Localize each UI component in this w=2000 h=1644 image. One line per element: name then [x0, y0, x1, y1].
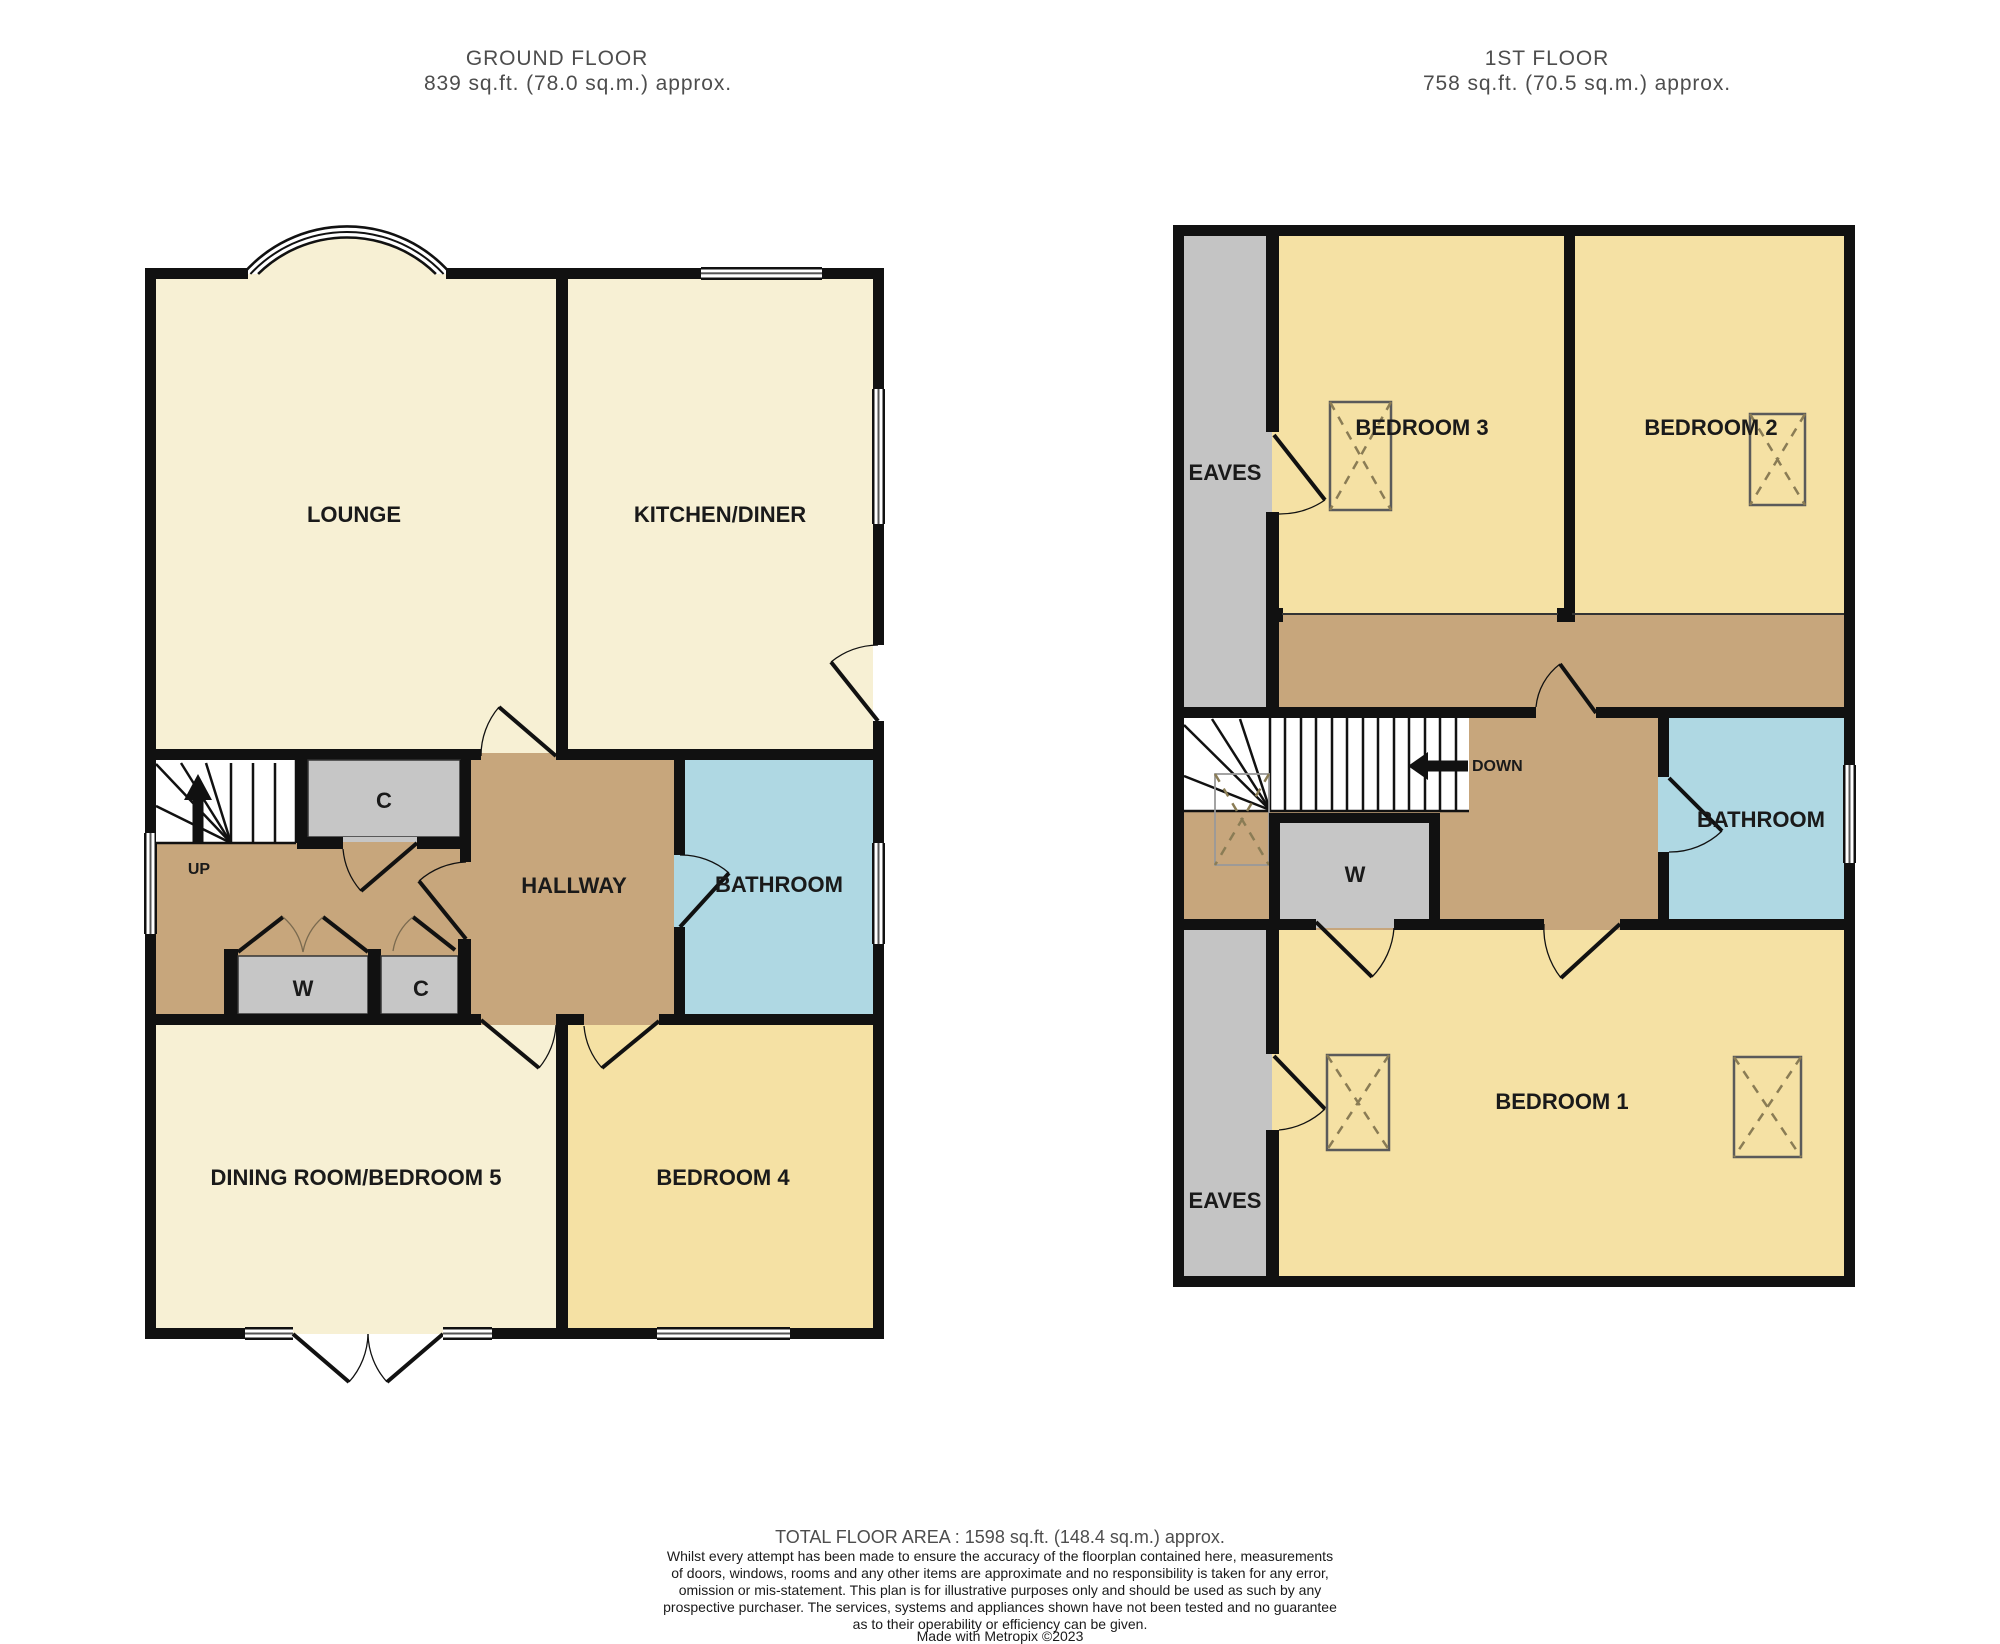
svg-text:W: W: [1345, 862, 1366, 887]
svg-text:BATHROOM: BATHROOM: [1697, 807, 1825, 832]
svg-text:DINING ROOM/BEDROOM 5: DINING ROOM/BEDROOM 5: [211, 1165, 502, 1190]
svg-text:BEDROOM 2: BEDROOM 2: [1644, 415, 1777, 440]
svg-text:LOUNGE: LOUNGE: [307, 502, 401, 527]
svg-text:BATHROOM: BATHROOM: [715, 872, 843, 897]
svg-text:839 sq.ft. (78.0 sq.m.) approx: 839 sq.ft. (78.0 sq.m.) approx.: [424, 72, 732, 95]
svg-text:DOWN: DOWN: [1472, 758, 1523, 775]
svg-text:UP: UP: [188, 861, 211, 878]
svg-text:C: C: [413, 976, 429, 1001]
svg-text:KITCHEN/DINER: KITCHEN/DINER: [634, 502, 806, 527]
svg-text:758 sq.ft. (70.5 sq.m.) approx: 758 sq.ft. (70.5 sq.m.) approx.: [1423, 72, 1731, 95]
svg-text:EAVES: EAVES: [1189, 1188, 1262, 1213]
svg-text:of doors, windows, rooms and a: of doors, windows, rooms and any other i…: [671, 1565, 1329, 1581]
svg-text:EAVES: EAVES: [1189, 460, 1262, 485]
svg-text:C: C: [376, 788, 392, 813]
svg-text:prospective purchaser. The ser: prospective purchaser. The services, sys…: [663, 1599, 1337, 1615]
svg-text:BEDROOM 3: BEDROOM 3: [1355, 415, 1488, 440]
svg-text:TOTAL FLOOR AREA : 1598 sq.ft.: TOTAL FLOOR AREA : 1598 sq.ft. (148.4 sq…: [775, 1527, 1225, 1547]
svg-text:Whilst every attempt has been: Whilst every attempt has been made to en…: [667, 1548, 1333, 1564]
svg-text:1ST FLOOR: 1ST FLOOR: [1485, 47, 1609, 70]
svg-text:GROUND FLOOR: GROUND FLOOR: [466, 47, 648, 70]
svg-text:BEDROOM 4: BEDROOM 4: [656, 1165, 790, 1190]
svg-text:W: W: [293, 976, 314, 1001]
svg-text:Made with Metropix ©2023: Made with Metropix ©2023: [917, 1628, 1084, 1644]
svg-text:HALLWAY: HALLWAY: [521, 873, 627, 898]
svg-text:BEDROOM 1: BEDROOM 1: [1495, 1089, 1628, 1114]
svg-text:omission or mis-statement. Thi: omission or mis-statement. This plan is …: [679, 1582, 1322, 1598]
